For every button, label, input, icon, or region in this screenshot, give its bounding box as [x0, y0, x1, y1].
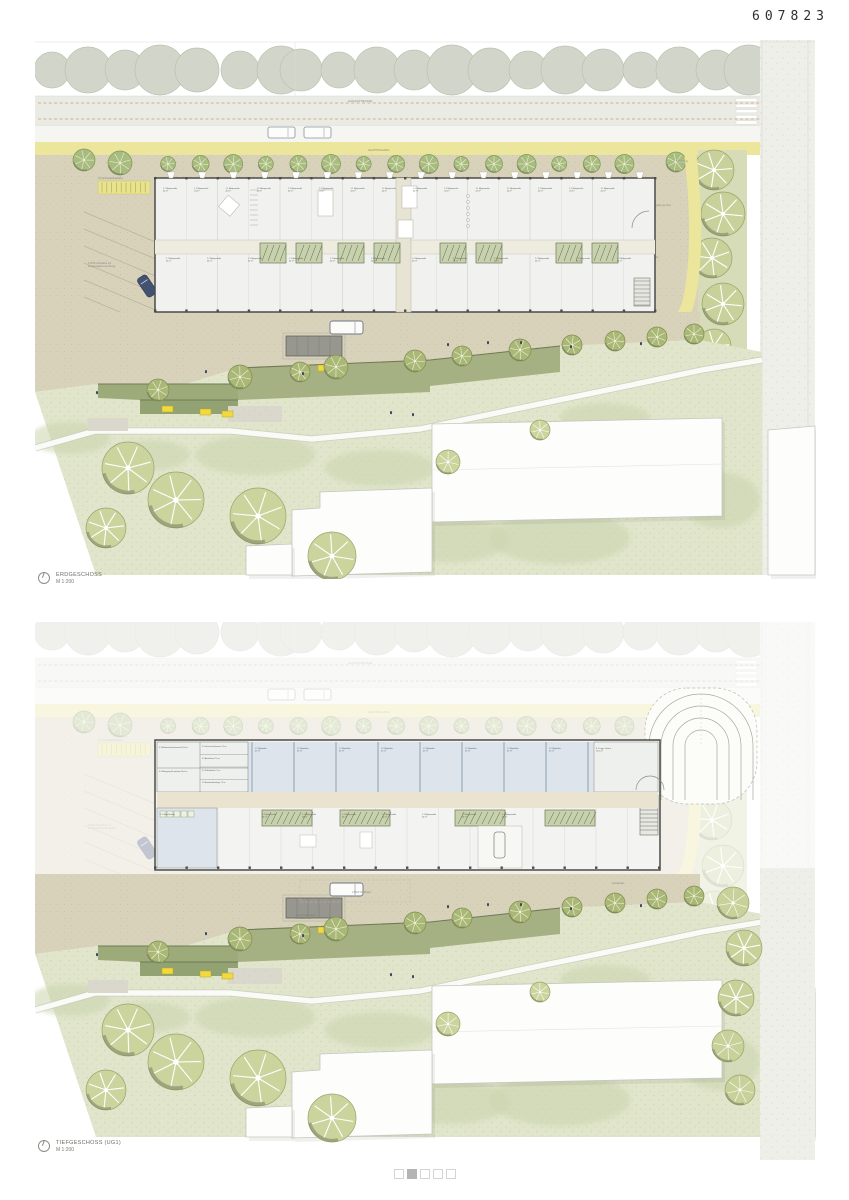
landscape-layer: 2 PKW StellplätzeSpielgeräteLauschige Pl…	[30, 868, 818, 1160]
plan-scale-erdgeschoss: M 1:200	[56, 579, 102, 586]
svg-text:5.5 Kellerabteile 7,5 m²: 5.5 Kellerabteile 7,5 m²	[202, 769, 221, 772]
pager-square-1	[394, 1169, 404, 1179]
plan-caption-erdgeschoss: ERDGESCHOSS M 1:200	[38, 572, 102, 585]
svg-text:26 Fahrradabstellplätze: 26 Fahrradabstellplätze	[98, 177, 124, 180]
north-arrow-icon	[38, 1140, 50, 1152]
svg-text:5.4 Übergang Fernwärme 50,0 m²: 5.4 Übergang Fernwärme 50,0 m²	[159, 770, 188, 773]
pager-square-2	[407, 1169, 417, 1179]
svg-text:Anlieferung: Anlieferung	[676, 160, 688, 163]
svg-text:2.1 Waschküche: 2.1 Waschküche	[160, 814, 176, 816]
sheet-pager	[394, 1169, 456, 1179]
plan-tiefgeschoss: HANSASTRASSEHAUPTZUGANG26 Fahrradabstell…	[30, 602, 818, 1160]
svg-text:HAUPTZUGANG: HAUPTZUGANG	[368, 710, 389, 714]
plan-caption-tiefgeschoss: TIEFGESCHOSS (UG1) M 1:200	[38, 1140, 121, 1153]
svg-text:HANSASTRASSE: HANSASTRASSE	[348, 99, 372, 103]
building-erdgeschoss: 1.1 Mietparzelle44 m²1.1 Mietparzelle44 …	[154, 172, 656, 312]
plan-erdgeschoss: HANSASTRASSEHAUPTZUGANG26 Fahrradabstell…	[30, 40, 818, 580]
svg-text:Spielgeräte: Spielgeräte	[612, 882, 625, 885]
pager-square-3	[420, 1169, 430, 1179]
plan-title-erdgeschoss: ERDGESCHOSS	[56, 572, 102, 579]
competition-board-sheet: HANSASTRASSEHAUPTZUGANG26 Fahrradabstell…	[0, 0, 849, 1200]
svg-text:HANSASTRASSE: HANSASTRASSE	[348, 661, 372, 665]
pager-square-4	[433, 1169, 443, 1179]
svg-text:5.3 Medienanschlussraum 50,0 m: 5.3 Medienanschlussraum 50,0 m²	[159, 746, 188, 749]
svg-text:5.1 Hausanschlussraum 7,5 m²: 5.1 Hausanschlussraum 7,5 m²	[202, 745, 227, 748]
entry-number: 607823	[752, 9, 829, 24]
svg-text:5.6 Brandmeldeanlage 7,5 m²: 5.6 Brandmeldeanlage 7,5 m²	[202, 781, 226, 784]
svg-text:26 Fahrradabstellplätze: 26 Fahrradabstellplätze	[98, 739, 124, 742]
plan-title-tiefgeschoss: TIEFGESCHOSS (UG1)	[56, 1140, 121, 1147]
north-arrow-icon	[38, 572, 50, 584]
svg-text:HAUPTZUGANG: HAUPTZUGANG	[368, 148, 389, 152]
landscape-layer	[30, 312, 818, 580]
pager-square-5	[446, 1169, 456, 1179]
plans-drawing: HANSASTRASSEHAUPTZUGANG26 Fahrradabstell…	[0, 0, 849, 1200]
svg-text:5.2 Abstellraum 7,5 m²: 5.2 Abstellraum 7,5 m²	[202, 757, 220, 760]
plan-scale-tiefgeschoss: M 1:200	[56, 1147, 121, 1154]
svg-text:2 PKW Stellplätze: 2 PKW Stellplätze	[352, 891, 372, 894]
